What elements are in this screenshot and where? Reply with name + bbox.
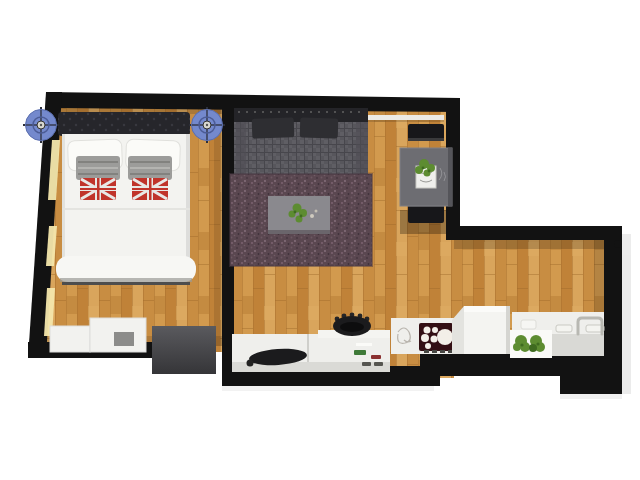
soap-item	[521, 320, 536, 329]
duvet-crease	[62, 208, 190, 210]
burner	[424, 327, 431, 334]
floor-plan-svg	[0, 0, 640, 480]
wall-corner-block	[560, 352, 622, 394]
wall-step	[420, 352, 440, 386]
sofa-cushion-left	[252, 117, 295, 138]
hob	[419, 323, 453, 351]
union-jack-cushion-left	[80, 178, 116, 200]
wall-shelf	[368, 115, 444, 120]
wall-kitchen-top	[446, 226, 614, 240]
gray-cushion-left	[76, 156, 120, 180]
bolster-shadow	[60, 278, 192, 282]
wall-knob	[614, 240, 622, 248]
chair-north	[408, 124, 444, 141]
sofa-cushion-right	[300, 118, 339, 139]
dresser-small	[50, 326, 90, 352]
sofa-armrest	[236, 122, 246, 174]
burner	[425, 343, 431, 349]
gray-cushion-right	[128, 156, 172, 180]
basin-knob	[247, 360, 254, 367]
fridge-cube	[452, 306, 510, 354]
burner-large	[437, 329, 453, 345]
bed-edge-shadow	[186, 134, 190, 266]
table-edge-shadow	[448, 148, 452, 206]
floor-plan-stage	[0, 0, 640, 480]
coffee-table-shadow	[268, 230, 330, 234]
dark-door-panel	[152, 326, 216, 374]
bed-frame-line	[62, 282, 190, 285]
chair-south	[408, 204, 444, 223]
shelf-shadow	[368, 120, 444, 122]
sink-basin-left	[556, 325, 572, 332]
dresser-tv-square	[114, 332, 134, 346]
bed-edge-shadow	[62, 134, 65, 266]
burner	[431, 336, 438, 343]
burner	[421, 334, 429, 342]
burner	[432, 327, 438, 333]
headboard-tufting	[58, 112, 190, 136]
union-jack-cushion-right	[132, 178, 168, 200]
coffee-table	[268, 196, 330, 234]
sofa-armrest	[356, 122, 368, 174]
